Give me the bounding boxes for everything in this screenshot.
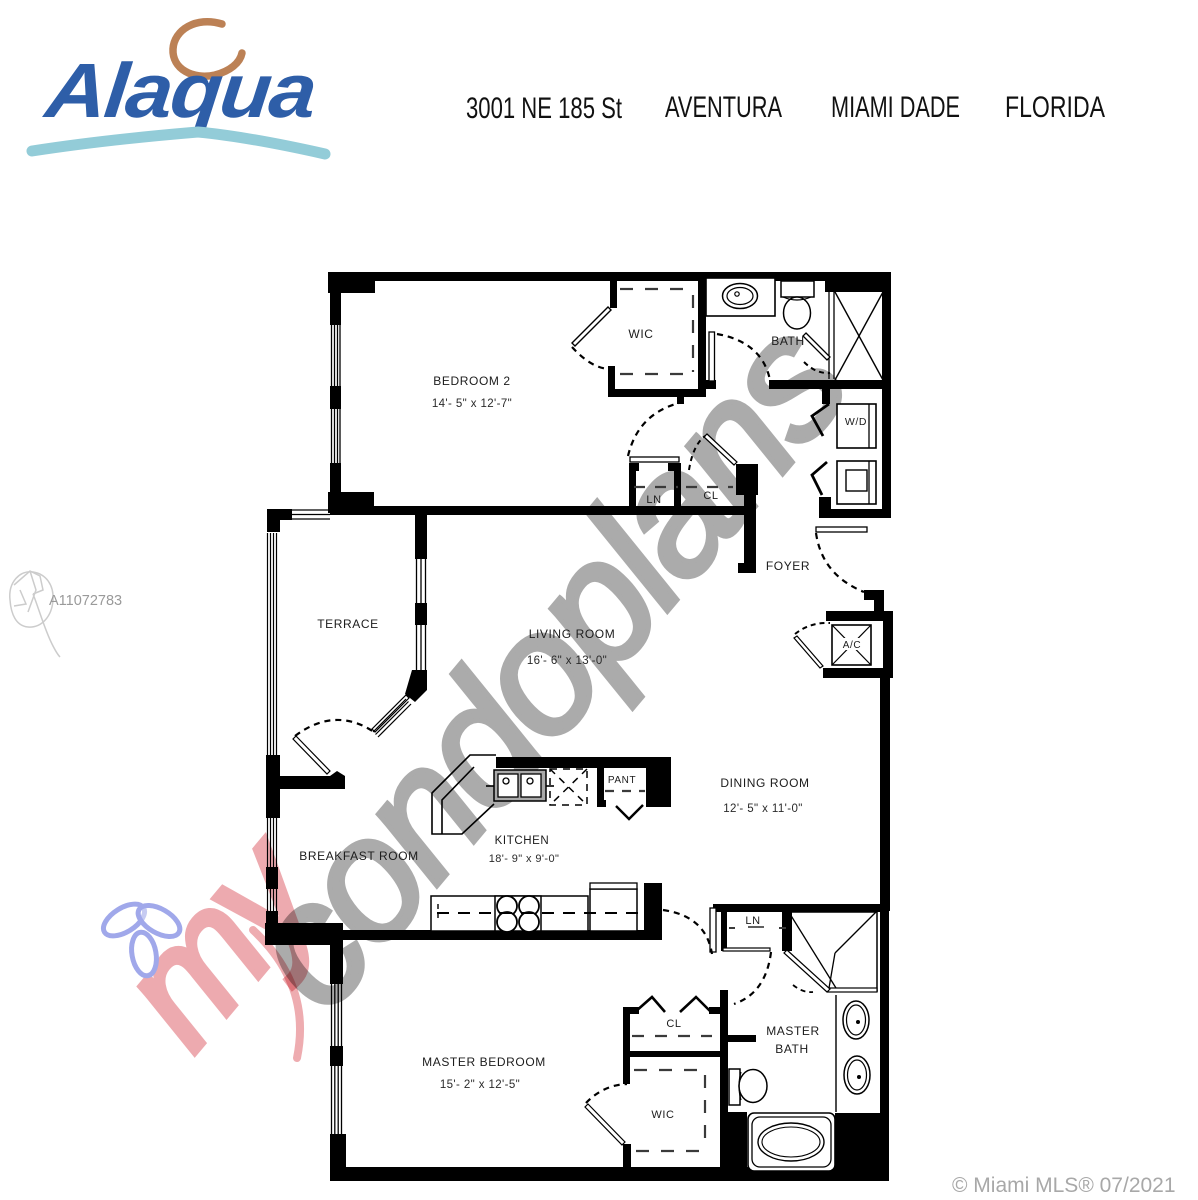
svg-text:Alaqua: Alaqua [40, 48, 319, 134]
svg-text:12'- 5" x 11'-0": 12'- 5" x 11'-0" [723, 803, 802, 815]
svg-text:KITCHEN: KITCHEN [495, 835, 550, 847]
svg-text:LN: LN [646, 494, 661, 506]
svg-text:3001 NE 185 St: 3001 NE 185 St [466, 92, 622, 125]
svg-text:16'- 6" x 13'-0": 16'- 6" x 13'-0" [527, 655, 607, 667]
svg-text:WIC: WIC [651, 1109, 674, 1121]
svg-text:LN: LN [745, 915, 760, 927]
svg-text:BATH: BATH [775, 1042, 809, 1056]
svg-text:© Miami MLS® 07/2021: © Miami MLS® 07/2021 [952, 1174, 1176, 1197]
svg-text:15'- 2" x 12'-5": 15'- 2" x 12'-5" [440, 1079, 520, 1091]
svg-text:WIC: WIC [628, 327, 653, 341]
svg-text:W/D: W/D [845, 416, 867, 428]
svg-text:CL: CL [666, 1018, 681, 1030]
svg-text:PANT: PANT [608, 775, 636, 786]
svg-text:A11072783: A11072783 [49, 593, 122, 609]
svg-text:MASTER: MASTER [766, 1024, 820, 1038]
svg-text:BREAKFAST ROOM: BREAKFAST ROOM [299, 849, 419, 863]
svg-text:DINING ROOM: DINING ROOM [720, 776, 809, 790]
svg-text:18'- 9" x 9'-0": 18'- 9" x 9'-0" [489, 853, 560, 865]
svg-text:A/C: A/C [843, 640, 861, 651]
svg-text:BEDROOM 2: BEDROOM 2 [433, 374, 510, 388]
svg-text:BATH: BATH [771, 334, 805, 348]
svg-text:MIAMI DADE: MIAMI DADE [831, 91, 960, 124]
svg-text:TERRACE: TERRACE [317, 617, 379, 631]
svg-text:FOYER: FOYER [766, 559, 810, 573]
svg-text:FLORIDA: FLORIDA [1005, 91, 1105, 124]
svg-text:AVENTURA: AVENTURA [665, 91, 782, 124]
svg-text:CL: CL [703, 490, 718, 502]
svg-text:LIVING ROOM: LIVING ROOM [529, 627, 616, 641]
svg-text:MASTER BEDROOM: MASTER BEDROOM [422, 1055, 546, 1069]
svg-text:14'- 5" x 12'-7": 14'- 5" x 12'-7" [432, 398, 512, 410]
